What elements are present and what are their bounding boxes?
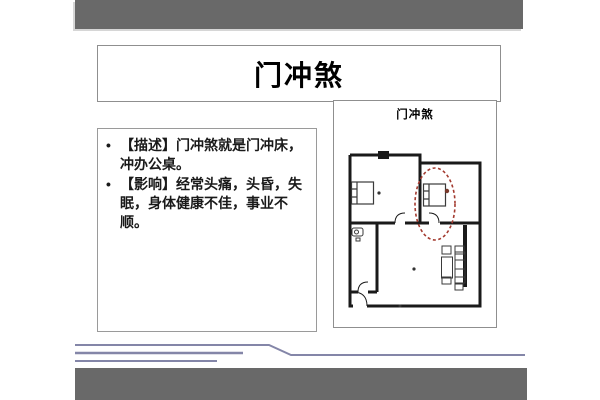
bullet-icon: •	[106, 136, 120, 155]
bullet-list: •【描述】门冲煞就是门冲床，冲办公桌。 •【影响】经常头痛，头昏，失眠，身体健康…	[106, 136, 310, 232]
bullet-item-description: •【描述】门冲煞就是门冲床，冲办公桌。	[106, 136, 310, 174]
door-arcs	[353, 213, 439, 306]
sofa-set-icon	[442, 246, 466, 290]
content-box: •【描述】门冲煞就是门冲床，冲办公桌。 •【影响】经常头痛，头昏，失眠，身体健康…	[97, 128, 317, 332]
slide: 门冲煞 •【描述】门冲煞就是门冲床，冲办公桌。 •【影响】经常头痛，头昏，失眠，…	[0, 0, 600, 400]
floorplan-diagram	[334, 101, 496, 327]
bottom-banner-bar	[75, 368, 527, 400]
door-arc-bathroom	[358, 282, 368, 292]
door-arc-entrance	[353, 292, 367, 306]
door-arc-left-bedroom	[395, 213, 405, 223]
top-banner-bar	[75, 0, 523, 29]
bed-left-icon	[352, 182, 374, 204]
bed-right-icon	[424, 184, 446, 206]
bullet-text-impact: 【影响】经常头痛，头昏，失眠，身体健康不佳，事业不顺。	[120, 176, 302, 230]
door-arc-right-bedroom	[429, 213, 439, 223]
floorplan-panel: 门冲煞	[333, 100, 497, 328]
bullet-text-description: 【描述】门冲煞就是门冲床，冲办公桌。	[120, 137, 302, 172]
bullet-item-impact: •【影响】经常头痛，头昏，失眠，身体健康不佳，事业不顺。	[106, 175, 310, 232]
bullet-icon: •	[106, 175, 120, 194]
window-icon	[378, 151, 389, 159]
decorative-lines	[73, 342, 527, 366]
title-box: 门冲煞	[97, 45, 501, 102]
toilet-icon	[352, 228, 363, 241]
page-title: 门冲煞	[254, 54, 344, 94]
room-marker-dots	[377, 189, 449, 308]
